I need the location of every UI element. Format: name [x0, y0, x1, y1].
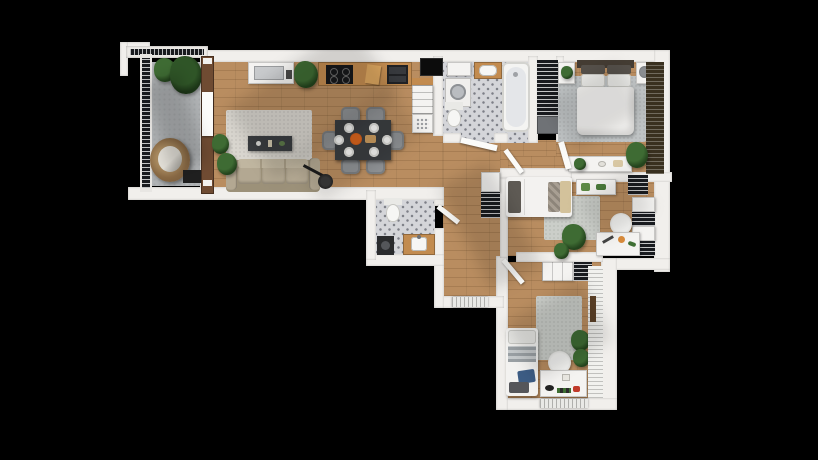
kitchen-floor-unit: [412, 114, 433, 133]
master-pillow-dark-2: [607, 65, 631, 74]
bottom-bedroom-dresser: [542, 262, 574, 281]
bottom-bedroom-radiator: [540, 399, 588, 408]
wc-washing-machine: [377, 236, 394, 255]
midbed-cushion-dark: [508, 181, 521, 213]
dining-chair-3: [341, 158, 360, 174]
sofa-back-pillows: [238, 159, 308, 168]
kitchen-drawer-unit: [412, 85, 433, 114]
bathroom-wall-cabinet: [447, 62, 471, 76]
kitchen-double-sink: [387, 65, 408, 84]
kitchen-sink-cabinet: [248, 62, 294, 84]
wall-wc-right-b: [434, 228, 444, 308]
dining-chair-4: [366, 158, 385, 174]
floor-lamp: [318, 174, 333, 189]
sofa: [226, 158, 320, 192]
balcony-door: [202, 92, 213, 136]
middle-bedroom-wall-desk: [576, 179, 616, 195]
master-plant: [626, 142, 648, 168]
midbed-wardrobe-box-1: [632, 197, 655, 212]
master-duvet: [577, 87, 634, 135]
egg-chair-blanket: [158, 146, 182, 172]
master-console: [568, 156, 632, 172]
dining-table: [335, 120, 391, 160]
kitchen-plant: [294, 61, 318, 88]
balcony-plant-large: [170, 56, 202, 94]
wc-toilet: [384, 198, 402, 223]
master-pillow-light-1: [581, 74, 605, 87]
fridge: [420, 58, 443, 76]
bathroom-sink-vanity: [474, 62, 502, 79]
floor-plan: [0, 0, 818, 460]
window-sill-a: [203, 58, 212, 64]
wall-bath-bottom-a: [443, 133, 461, 143]
wall-wc-left: [366, 190, 376, 260]
cutting-board: [365, 64, 382, 85]
sofa-cushion-3: [286, 167, 308, 184]
midbed-wardrobe-shelf-1: [632, 212, 655, 226]
middle-bedroom-bed: [506, 177, 572, 217]
bathroom-toilet: [445, 102, 463, 128]
hall-wardrobe-box: [537, 116, 560, 134]
middle-bedroom-desk: [596, 232, 640, 256]
midbed-pillow-patterned: [548, 182, 560, 212]
master-nightstand-left: [558, 62, 575, 84]
hall-shoe-cabinet-top: [481, 172, 500, 192]
bottom-bedroom-bed: [506, 328, 538, 396]
bathtub: [502, 62, 530, 132]
cooktop: [326, 65, 353, 84]
kitchen-cabinet-sink: [254, 66, 284, 80]
middle-bedroom-plant-small: [554, 243, 569, 259]
botbed-pillow-top: [508, 330, 536, 344]
living-plant-1: [212, 134, 229, 154]
botbed-pillow-gray: [509, 382, 529, 393]
coffee-table: [248, 136, 292, 151]
master-pillow-light-2: [607, 74, 631, 87]
balcony-left-railing: [140, 54, 152, 192]
railing-slats: [142, 58, 150, 188]
floor-unit-pattern: [416, 118, 429, 129]
bottom-bedroom-desk: [540, 370, 587, 397]
bottom-bedroom-louvered-wardrobe: [588, 266, 603, 398]
serving-dish: [350, 133, 362, 145]
balcony-top-railing: [126, 46, 208, 58]
wc-sink-vanity: [403, 234, 435, 255]
bread-board: [365, 135, 376, 143]
wall-botbed-right: [601, 258, 617, 410]
living-plant-2: [217, 153, 237, 175]
kitchen-drawer-unit-top: [412, 78, 433, 85]
window-sill-b: [203, 180, 212, 186]
kitchen-counter: [318, 62, 412, 86]
master-window-blinds: [646, 62, 664, 174]
middle-bedroom-bookshelf: [628, 175, 648, 195]
botbed-banded-blanket: [508, 346, 536, 362]
wall-midbed-bottom-right: [610, 258, 670, 270]
kitchen-cabinet-item: [286, 70, 292, 79]
hall-shoe-cabinet-rack: [481, 192, 500, 218]
wall-bath-bottom-b: [494, 133, 508, 143]
balcony-doormat: [183, 170, 201, 183]
sofa-cushion-2: [262, 167, 285, 184]
master-pillow-dark-1: [581, 65, 605, 74]
louver-wardrobe-accent: [590, 296, 596, 322]
midbed-pillow-beige: [560, 181, 571, 213]
sofa-cushion-1: [238, 167, 261, 184]
hall-radiator: [452, 297, 488, 307]
wall-wc-bottom: [366, 254, 444, 266]
